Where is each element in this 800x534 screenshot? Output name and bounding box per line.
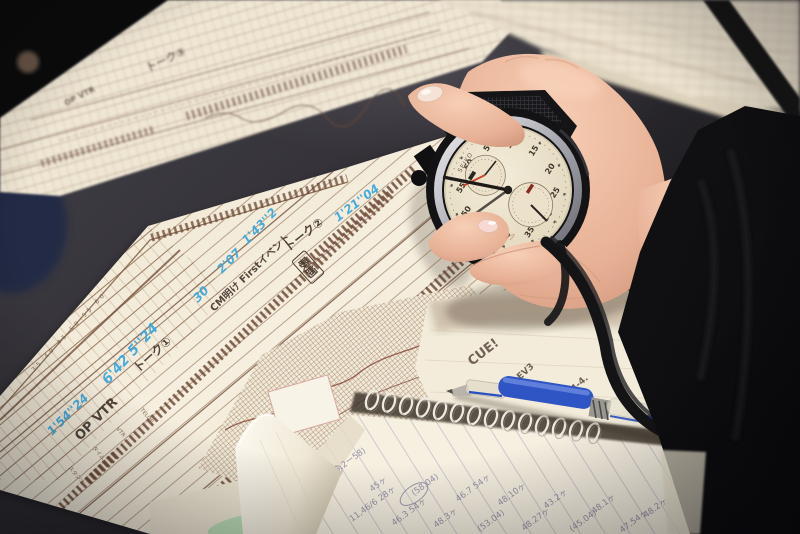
vignette (0, 0, 800, 534)
photo-scene: トーク③ OP VTR スタジオ タイム VTR TELOP 35 40 (0, 0, 800, 534)
